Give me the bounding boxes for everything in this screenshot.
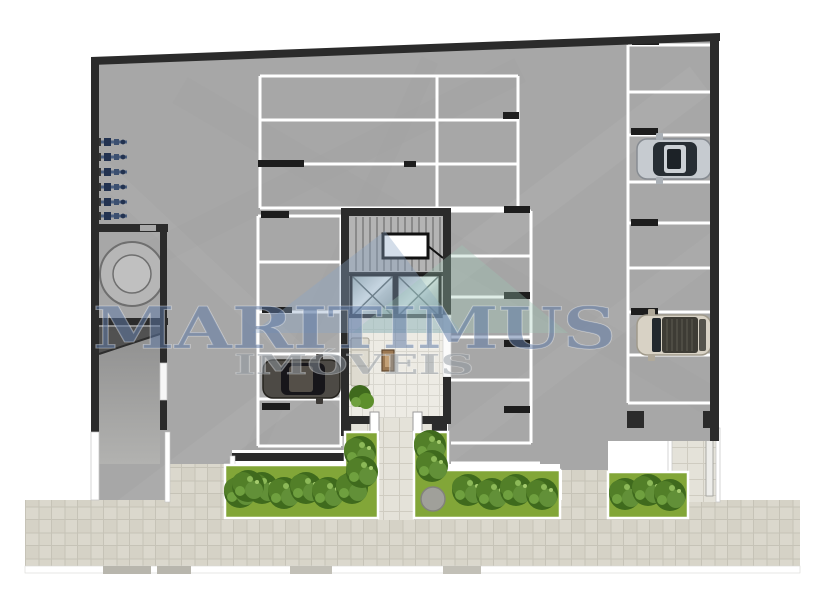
left-wall: [91, 60, 99, 432]
curb-cut: [443, 566, 481, 574]
left-wall-opening: [91, 432, 99, 500]
ramp-side-wall: [160, 400, 167, 430]
entry-wall-right: [420, 416, 451, 424]
meter-room-door: [140, 225, 156, 231]
right-wall: [710, 36, 719, 441]
car-silver: [637, 133, 711, 184]
pillar: [627, 411, 644, 428]
core-wall-top: [341, 208, 451, 216]
wheel-stop: [258, 160, 304, 167]
wheel-stop: [503, 112, 519, 119]
curb-cut: [290, 566, 332, 574]
car-mirror: [648, 309, 655, 316]
curb-cut: [157, 566, 191, 574]
floor-plan-image: MARITIMUS IMÓVEIS: [0, 0, 826, 600]
wheel-stop: [631, 219, 658, 226]
wheel-stop: [504, 406, 530, 413]
watermark-tagline-text: IMÓVEIS: [234, 347, 474, 381]
plan-canvas: MARITIMUS IMÓVEIS: [0, 0, 826, 600]
entry-wall-left: [341, 416, 372, 424]
bottom-wall-left: [232, 453, 345, 461]
pedestrian-gate: [706, 432, 713, 496]
wheel-stop: [504, 206, 530, 213]
wall-edge-line: [232, 450, 345, 453]
car-beige: [637, 309, 711, 361]
car-mirror: [316, 398, 323, 404]
driveway-apron-right: [562, 470, 608, 502]
meter-room-wall: [95, 224, 168, 232]
cistern-inner: [113, 255, 151, 293]
wheel-stop: [631, 128, 658, 135]
wheel-stop: [262, 403, 290, 410]
wheel-stop: [261, 211, 289, 218]
entry-walkway: [378, 418, 414, 520]
gate-post-wall: [165, 432, 170, 502]
ramp-side-opening: [160, 363, 167, 400]
car-mirror: [648, 354, 655, 361]
car-mirror: [656, 177, 663, 184]
wheel-stop: [404, 161, 416, 167]
decorative-stone: [421, 487, 445, 511]
car-mirror: [656, 133, 663, 140]
curb-cut: [103, 566, 151, 574]
